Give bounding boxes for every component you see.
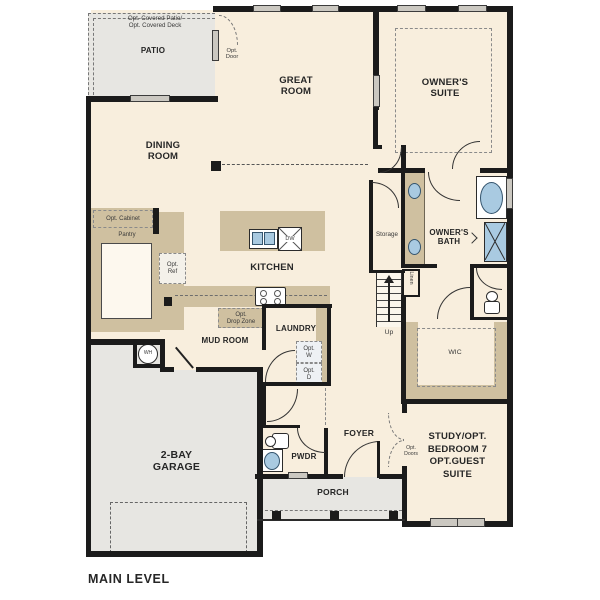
owners-bath-label: OWNER'S BATH bbox=[425, 228, 473, 247]
wall bbox=[262, 304, 332, 308]
wic-dashed-inner bbox=[417, 328, 496, 387]
wall bbox=[86, 339, 165, 345]
patio-door-slab bbox=[212, 30, 219, 61]
garage-door-dashed bbox=[110, 502, 247, 553]
foyer-label: FOYER bbox=[338, 428, 380, 438]
patio-note-label: Opt. Covered Patio/ Opt. Covered Deck bbox=[110, 16, 200, 30]
patio-label: PATIO bbox=[128, 46, 178, 55]
window-mullion bbox=[457, 519, 458, 526]
kitchen-label: KITCHEN bbox=[243, 262, 301, 273]
opt-drop-zone-box: Opt. Drop Zone bbox=[218, 308, 264, 328]
wall bbox=[401, 173, 405, 268]
porch-post bbox=[389, 511, 398, 520]
floor-plan: Opt. Cabinet Opt. Ref Opt. Drop Zone Opt… bbox=[0, 0, 600, 600]
dishwasher: DW bbox=[278, 227, 302, 251]
garage-label: 2-BAY GARAGE bbox=[128, 449, 225, 474]
opt-ref-box: Opt. Ref bbox=[159, 253, 186, 284]
wall bbox=[401, 295, 406, 404]
wall bbox=[480, 168, 513, 173]
up-label: Up bbox=[377, 329, 401, 337]
stairs-arrow-head bbox=[384, 275, 394, 283]
burner bbox=[274, 290, 281, 297]
wall bbox=[402, 404, 407, 413]
water-heater: WH bbox=[138, 344, 158, 364]
wall bbox=[164, 297, 172, 306]
window bbox=[130, 95, 170, 102]
vanity-sink-2 bbox=[408, 239, 421, 255]
window bbox=[506, 178, 513, 209]
wall bbox=[262, 425, 300, 428]
dishwasher-label: DW bbox=[282, 236, 298, 242]
window bbox=[312, 5, 339, 12]
window bbox=[397, 5, 426, 12]
wall bbox=[470, 317, 513, 320]
vanity-sink-1 bbox=[408, 183, 421, 199]
opt-washer-box: Opt. W bbox=[296, 341, 322, 363]
great-room-label: GREAT ROOM bbox=[265, 75, 327, 97]
wic-label: WIC bbox=[440, 349, 470, 357]
stairs-arrow-line bbox=[388, 280, 390, 322]
wall bbox=[402, 466, 407, 527]
shower-x-glyph bbox=[485, 223, 505, 260]
wall bbox=[327, 304, 331, 385]
wall bbox=[369, 270, 405, 273]
pantry-floor bbox=[101, 243, 152, 319]
owners-suite-label: OWNER'S SUITE bbox=[410, 77, 480, 99]
wall bbox=[401, 264, 437, 268]
closet-dashed-wall bbox=[325, 388, 326, 425]
wall bbox=[262, 382, 266, 428]
opt-cabinet-box: Opt. Cabinet bbox=[93, 210, 153, 228]
wall bbox=[196, 367, 262, 372]
pwdr-sink bbox=[264, 452, 280, 470]
island-sink-right bbox=[264, 232, 275, 245]
counter-dash-line bbox=[175, 295, 327, 296]
porch-post bbox=[330, 511, 339, 520]
shower bbox=[484, 222, 507, 262]
burner bbox=[260, 290, 267, 297]
window bbox=[458, 5, 487, 12]
mud-room-label: MUD ROOM bbox=[196, 336, 254, 345]
island-sink-left bbox=[252, 232, 263, 245]
bathtub-basin bbox=[480, 182, 503, 214]
bath-toilet-body bbox=[484, 301, 500, 314]
porch-post bbox=[272, 511, 281, 520]
pantry-label: Pantry bbox=[103, 232, 151, 239]
wall bbox=[262, 304, 266, 350]
wall bbox=[373, 110, 378, 148]
wall bbox=[470, 264, 474, 320]
wall bbox=[133, 364, 163, 368]
opt-door-label: Opt. Door bbox=[220, 48, 244, 61]
porch-label: PORCH bbox=[310, 487, 356, 497]
wall bbox=[86, 551, 263, 557]
patio-dashed-inner bbox=[93, 18, 215, 100]
window bbox=[288, 472, 308, 479]
ceiling-break-line bbox=[222, 164, 368, 165]
window bbox=[253, 5, 281, 12]
linen-label: Linen bbox=[408, 270, 414, 286]
storage-label: Storage bbox=[372, 231, 402, 238]
pwdr-toilet-head bbox=[265, 436, 276, 447]
study-label: STUDY/OPT. BEDROOM 7 OPT.GUEST SUITE bbox=[409, 431, 506, 481]
post bbox=[211, 161, 221, 171]
front-door-leaf bbox=[377, 441, 380, 478]
dining-room-label: DINING ROOM bbox=[132, 140, 194, 162]
pwdr-label: PWDR bbox=[287, 452, 321, 461]
wic-shelf-bottom bbox=[405, 385, 507, 399]
great-room-opening-slab bbox=[373, 75, 380, 107]
wall bbox=[86, 96, 91, 557]
wall bbox=[153, 208, 159, 234]
laundry-label: LAUNDRY bbox=[268, 324, 324, 333]
wall bbox=[402, 399, 513, 404]
window-study bbox=[430, 518, 485, 527]
wall bbox=[262, 382, 331, 386]
plan-title: MAIN LEVEL bbox=[88, 572, 228, 587]
